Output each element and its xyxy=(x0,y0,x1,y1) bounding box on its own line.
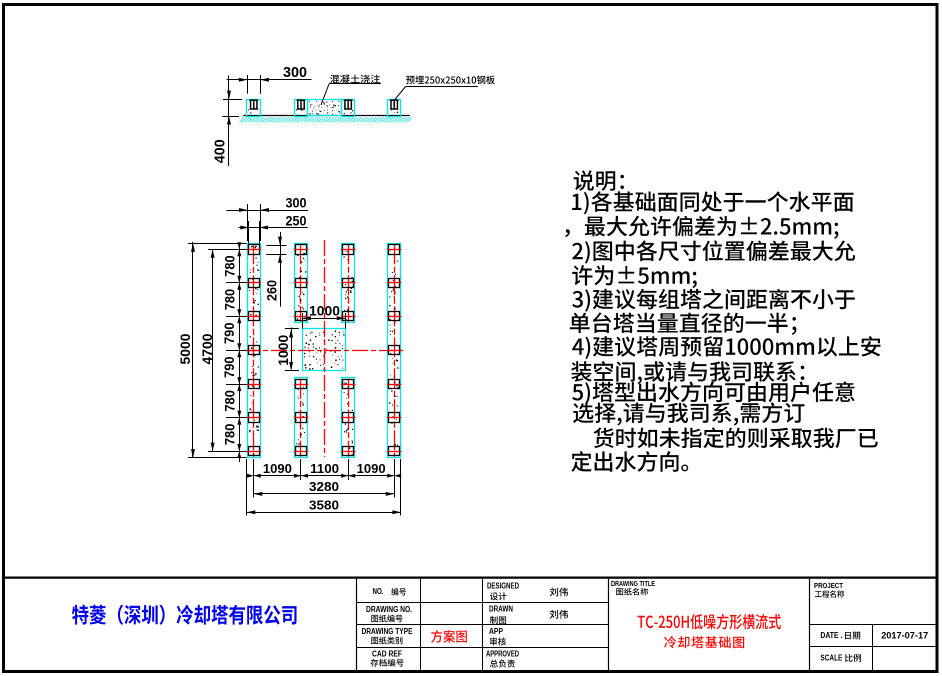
svg-text:790: 790 xyxy=(222,356,237,378)
svg-text:DRAWN: DRAWN xyxy=(489,604,513,613)
svg-text:DATE .: DATE . xyxy=(820,630,842,640)
svg-text:4700: 4700 xyxy=(200,334,215,365)
svg-text:1000: 1000 xyxy=(309,304,340,319)
svg-text:CAD REF: CAD REF xyxy=(372,649,402,658)
svg-text:1090: 1090 xyxy=(357,461,386,476)
svg-text:780: 780 xyxy=(222,255,237,277)
svg-text:SCALE: SCALE xyxy=(820,653,842,663)
svg-text:DESIGNED: DESIGNED xyxy=(487,581,519,590)
svg-text:790: 790 xyxy=(222,323,237,345)
svg-text:2017-07-17: 2017-07-17 xyxy=(881,631,928,642)
svg-text:APP: APP xyxy=(489,627,504,636)
svg-text:1000: 1000 xyxy=(276,335,291,366)
svg-text:300: 300 xyxy=(283,65,307,81)
svg-text:780: 780 xyxy=(222,424,237,446)
svg-text:DRAWING TITLE: DRAWING TITLE xyxy=(611,579,655,588)
svg-text:3580: 3580 xyxy=(309,498,339,513)
svg-text:5000: 5000 xyxy=(178,334,193,365)
svg-text:300: 300 xyxy=(286,196,307,211)
svg-text:DRAWING NO.: DRAWING NO. xyxy=(366,605,412,614)
svg-text:APPROVED: APPROVED xyxy=(486,650,519,659)
svg-text:1100: 1100 xyxy=(310,461,339,476)
svg-text:3280: 3280 xyxy=(309,479,339,494)
svg-text:780: 780 xyxy=(222,289,237,311)
svg-text:NO.: NO. xyxy=(373,587,384,596)
svg-text:400: 400 xyxy=(213,139,229,163)
svg-text:780: 780 xyxy=(222,390,237,412)
svg-text:250: 250 xyxy=(286,214,307,229)
svg-text:DRAWING TYPE: DRAWING TYPE xyxy=(362,627,414,636)
svg-text:PROJECT: PROJECT xyxy=(814,581,843,590)
svg-text:260: 260 xyxy=(265,280,280,301)
svg-text:1090: 1090 xyxy=(263,461,292,476)
